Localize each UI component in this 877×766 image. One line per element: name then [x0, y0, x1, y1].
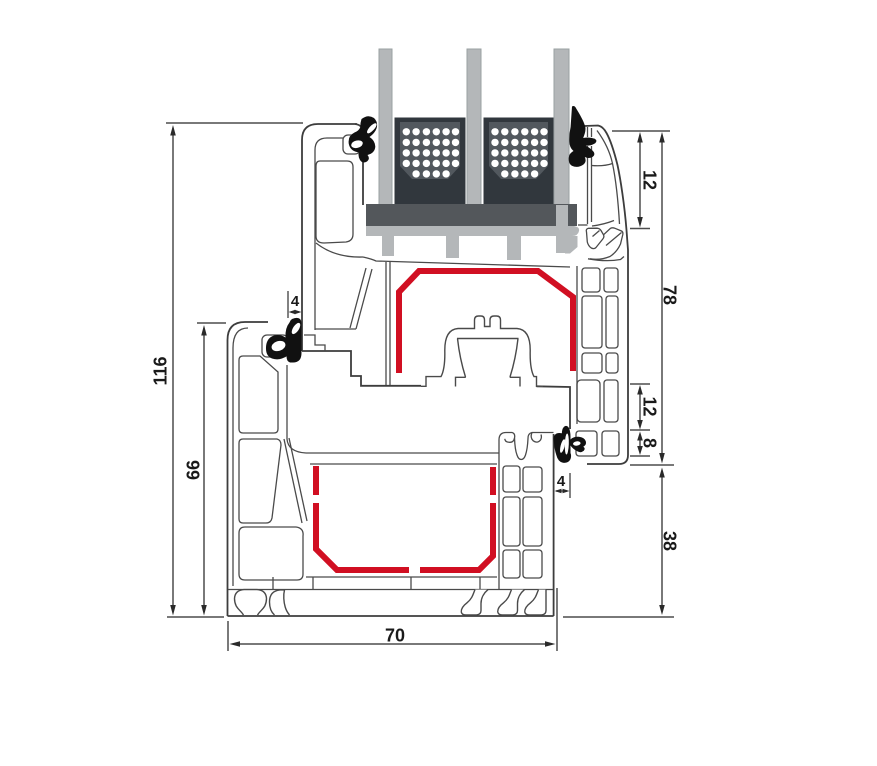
svg-text:116: 116	[151, 356, 171, 385]
svg-text:12: 12	[640, 396, 660, 416]
svg-text:4: 4	[557, 473, 566, 490]
svg-text:4: 4	[291, 293, 300, 310]
svg-text:78: 78	[660, 285, 680, 305]
svg-text:12: 12	[640, 170, 660, 190]
svg-text:66: 66	[184, 460, 204, 480]
svg-text:70: 70	[385, 626, 405, 646]
svg-text:8: 8	[640, 438, 660, 448]
svg-text:38: 38	[660, 531, 680, 551]
